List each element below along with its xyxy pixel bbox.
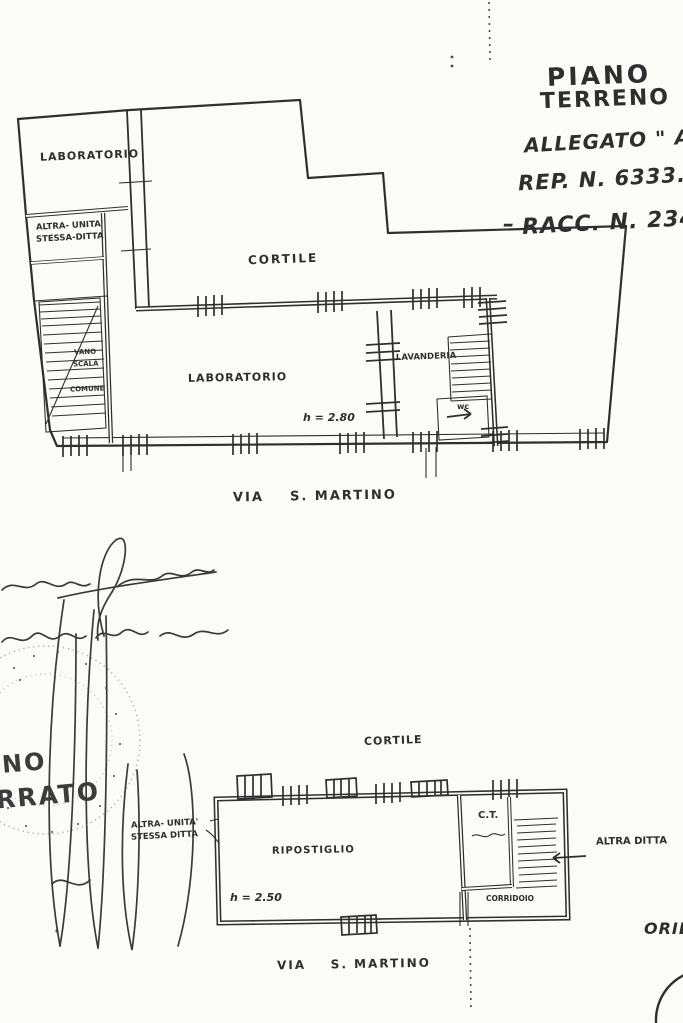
label-altra-ditta: ALTRA DITTA [596, 835, 667, 848]
room-label-cortile-upper: CORTILE [248, 252, 319, 268]
room-label-ripostiglio: RIPOSTIGLIO [272, 844, 355, 857]
room-label-vano-scala-line1: VANO [74, 348, 96, 357]
room-label-wc: wc [457, 402, 469, 411]
window-marks-upper [63, 287, 604, 478]
room-label-corridoio: CORRIDOIO [486, 895, 534, 904]
stairs-right-upper [448, 334, 492, 401]
stairs-lower [514, 818, 558, 888]
room-label-vano-scala-line2: SCALA [73, 360, 99, 369]
racc-dash: – [503, 212, 515, 237]
lower-bottom-window [341, 915, 377, 935]
orientation-label: ORIEN [644, 920, 683, 938]
street-label-upper: VIA S. MARTINO [233, 489, 397, 507]
height-note-upper: h = 2.80 [303, 412, 355, 425]
room-label-laboratorio-main: LABORATORIO [188, 371, 287, 385]
compass-circle-partial [656, 970, 683, 1023]
signature-flourishes [2, 538, 228, 950]
street-label-lower: VIA S. MARTINO [277, 957, 431, 973]
lower-floor-plan [206, 774, 586, 935]
height-note-lower: h = 2.50 [230, 892, 282, 905]
room-label-vano-scala-line3: COMUNE [70, 384, 105, 393]
entrance-arrow [553, 853, 586, 863]
stamp-word-line1: NO [1, 748, 48, 779]
plan-title-line2: TERRENO [540, 85, 671, 115]
room-label-cortile-lower: CORTILE [364, 734, 423, 749]
scanned-floorplan-page: PIANO TERRENO ALLEGATO " A REP. N. 6333.… [0, 0, 683, 1023]
room-label-ct: C.T. [478, 810, 498, 822]
